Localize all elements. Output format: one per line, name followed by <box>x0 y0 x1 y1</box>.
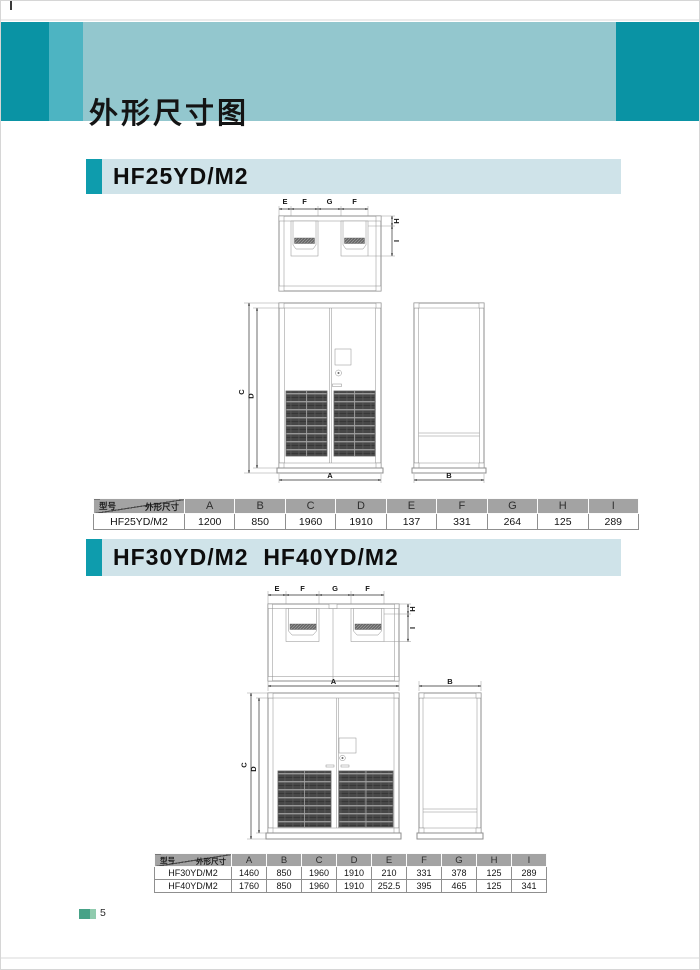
svg-text:H: H <box>392 218 401 223</box>
table-corner-cell: 型号 外形尺寸 <box>94 499 185 514</box>
page-header-banner: 外形尺寸图 <box>1 22 700 121</box>
table-row: HF30YD/M2 1460 850 1960 1910 210 331 378… <box>155 867 547 880</box>
col-C: C <box>285 499 335 514</box>
banner-right-block <box>616 22 700 121</box>
section1-title: HF25YD/M2 <box>113 162 249 189</box>
col-H: H <box>477 854 512 867</box>
col-B: B <box>235 499 285 514</box>
svg-text:E: E <box>282 197 287 206</box>
manual-page: 外形尺寸图 HF25YD/M2 <box>0 0 700 970</box>
col-A: A <box>232 854 267 867</box>
dimension-line-C: C <box>239 303 279 473</box>
top-rule <box>1 19 700 21</box>
svg-text:G: G <box>327 197 333 206</box>
table-header-row: 型号 外形尺寸 A B C D E F G H I <box>94 499 639 514</box>
col-C: C <box>302 854 337 867</box>
svg-text:B: B <box>447 677 453 686</box>
svg-text:D: D <box>247 393 256 399</box>
cabinet-side-outline <box>414 303 484 468</box>
svg-text:F: F <box>300 584 305 593</box>
hf25-dimensions-table: 型号 外形尺寸 A B C D E F G H I HF25YD/M2 1200… <box>93 498 639 530</box>
col-A: A <box>185 499 235 514</box>
page-number: 5 <box>100 907 106 919</box>
svg-text:C: C <box>241 762 249 768</box>
hf25-top-view-diagram: E F G F H I <box>271 195 403 297</box>
hf30-40-side-view-diagram: B <box>411 677 503 853</box>
model-cell: HF40YD/M2 <box>155 880 232 893</box>
svg-text:H: H <box>408 606 417 611</box>
col-D: D <box>336 499 386 514</box>
banner-accent-strip <box>49 22 83 121</box>
page-title: 外形尺寸图 <box>89 90 249 132</box>
table-row: HF40YD/M2 1760 850 1960 1910 252.5 395 4… <box>155 880 547 893</box>
cabinet-side-outline <box>419 693 481 833</box>
dimension-line-B: B <box>419 677 481 691</box>
corner-dims-label: 外形尺寸 <box>145 501 179 513</box>
col-D: D <box>337 854 372 867</box>
dimension-line-D: D <box>247 308 280 468</box>
hf30-40-dimensions-table: 型号 外形尺寸 A B C D E F G H I HF30YD/M2 1460… <box>154 853 547 893</box>
hf25-front-view-diagram: C D <box>239 297 409 489</box>
svg-text:I: I <box>408 627 417 629</box>
svg-text:F: F <box>365 584 370 593</box>
svg-text:F: F <box>302 197 307 206</box>
col-E: E <box>372 854 407 867</box>
col-H: H <box>538 499 588 514</box>
col-F: F <box>437 499 487 514</box>
heading-accent-square <box>86 539 102 576</box>
svg-text:E: E <box>274 584 279 593</box>
section1-heading-bar: HF25YD/M2 <box>86 159 621 194</box>
hf25-side-view-diagram: B <box>401 297 503 489</box>
heading-accent-square <box>86 159 102 194</box>
page-marker-square-dark <box>79 909 90 919</box>
col-E: E <box>386 499 436 514</box>
corner-dims-label: 外形尺寸 <box>196 856 226 867</box>
banner-left-block <box>1 22 49 121</box>
col-I: I <box>588 499 639 514</box>
registration-tick <box>10 1 12 10</box>
table-corner-cell: 型号 外形尺寸 <box>155 854 232 867</box>
svg-text:C: C <box>239 389 246 395</box>
svg-text:B: B <box>446 471 452 480</box>
svg-text:F: F <box>352 197 357 206</box>
dimension-line-D: D <box>249 698 268 833</box>
page-marker-square-light <box>90 909 96 919</box>
svg-text:D: D <box>249 766 258 772</box>
svg-text:A: A <box>327 471 333 480</box>
hf30-40-front-view-diagram: A C D <box>241 677 411 853</box>
corner-model-label: 型号 <box>99 500 116 512</box>
col-G: G <box>442 854 477 867</box>
hf30-40-top-view-diagram: E F G F H I <box>259 583 424 686</box>
col-B: B <box>267 854 302 867</box>
bottom-rule <box>1 957 700 959</box>
svg-text:A: A <box>331 677 337 686</box>
base-plinth <box>417 833 483 839</box>
col-I: I <box>512 854 547 867</box>
model-cell: HF30YD/M2 <box>155 867 232 880</box>
section2-heading-bar: HF30YD/M2 HF40YD/M2 <box>86 539 621 576</box>
dimension-line-A: A <box>268 677 399 691</box>
section2-title: HF30YD/M2 HF40YD/M2 <box>113 543 399 570</box>
svg-text:I: I <box>392 240 401 242</box>
model-cell: HF25YD/M2 <box>94 514 185 530</box>
svg-text:G: G <box>332 584 338 593</box>
col-F: F <box>407 854 442 867</box>
corner-model-label: 型号 <box>160 855 175 866</box>
col-G: G <box>487 499 537 514</box>
table-row: HF25YD/M2 1200 850 1960 1910 137 331 264… <box>94 514 639 530</box>
base-plinth <box>266 833 401 839</box>
table-header-row: 型号 外形尺寸 A B C D E F G H I <box>155 854 547 867</box>
dimension-line-C: C <box>241 693 268 839</box>
